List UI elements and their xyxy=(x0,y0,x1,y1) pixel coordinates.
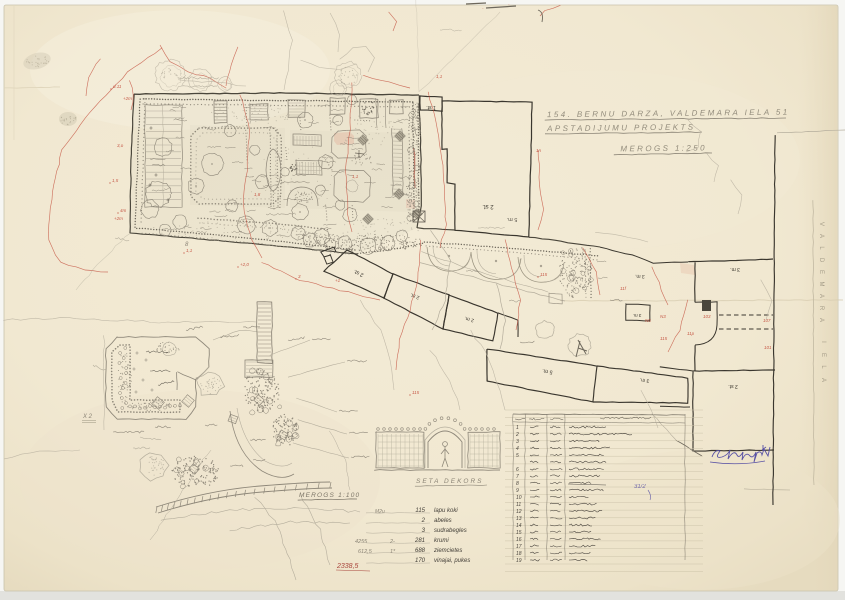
svg-text:A: A xyxy=(818,294,824,298)
svg-text:R: R xyxy=(818,306,824,311)
svg-text:X 2: X 2 xyxy=(82,414,93,420)
svg-text:19: 19 xyxy=(516,558,522,564)
svg-text:101: 101 xyxy=(764,345,772,350)
svg-text:MEROGS 1:100: MEROGS 1:100 xyxy=(299,492,360,499)
svg-text:krumi: krumi xyxy=(434,538,449,544)
svg-text:8: 8 xyxy=(516,481,519,487)
svg-text:2 st.: 2 st. xyxy=(728,383,737,389)
svg-text:+2,0: +2,0 xyxy=(240,262,249,267)
svg-text:1*: 1* xyxy=(390,549,396,555)
svg-text:1n: 1n xyxy=(536,148,542,153)
svg-text:1,1: 1,1 xyxy=(352,174,359,179)
svg-text:abeles: abeles xyxy=(434,518,452,524)
svg-text:9: 9 xyxy=(516,488,519,494)
svg-text:5 m.: 5 m. xyxy=(506,216,517,222)
svg-text:15: 15 xyxy=(516,530,522,536)
svg-text:1,1: 1,1 xyxy=(436,74,443,79)
svg-text:lapu koki: lapu koki xyxy=(434,508,458,514)
svg-text:APSTADIJUMU PROJEKTS: APSTADIJUMU PROJEKTS xyxy=(546,123,695,134)
svg-text:4m: 4m xyxy=(120,208,127,213)
svg-text:12: 12 xyxy=(516,509,522,515)
svg-text:115: 115 xyxy=(415,508,425,514)
svg-text:+2m: +2m xyxy=(123,96,132,101)
svg-text:1 st.: 1 st. xyxy=(426,104,435,110)
svg-text:612,5: 612,5 xyxy=(358,549,373,555)
svg-text:N5: N5 xyxy=(645,318,651,323)
svg-text:103: 103 xyxy=(703,314,711,319)
svg-text:2 st.: 2 st. xyxy=(482,203,494,209)
svg-text:18: 18 xyxy=(516,551,522,557)
svg-text:A: A xyxy=(820,378,826,382)
svg-text:+1: +1 xyxy=(335,278,341,283)
svg-text:281: 281 xyxy=(414,538,425,544)
svg-text:1,1: 1,1 xyxy=(186,248,193,253)
svg-text:170: 170 xyxy=(415,558,426,564)
svg-text:1,8: 1,8 xyxy=(254,192,261,197)
svg-text:14: 14 xyxy=(516,523,522,529)
svg-text:A: A xyxy=(818,318,824,322)
svg-text:A: A xyxy=(818,234,824,238)
svg-text:13: 13 xyxy=(516,516,522,522)
svg-text:11f: 11f xyxy=(620,286,627,291)
svg-text:11: 11 xyxy=(516,502,521,508)
svg-text:3 m.: 3 m. xyxy=(635,273,645,279)
svg-text:1: 1 xyxy=(516,425,519,431)
svg-text:2: 2 xyxy=(421,518,426,524)
svg-text:sudrabegles: sudrabegles xyxy=(434,528,467,534)
svg-text:d.11: d.11 xyxy=(113,84,122,89)
svg-text:31/2: 31/2 xyxy=(634,484,646,490)
svg-text:3 m.: 3 m. xyxy=(730,266,740,272)
svg-text:ziemcietes: ziemcietes xyxy=(433,548,462,554)
svg-text:M: M xyxy=(818,282,824,287)
svg-text:115: 115 xyxy=(540,272,548,277)
svg-text:D: D xyxy=(818,258,824,263)
svg-text:3 m.: 3 m. xyxy=(633,313,642,318)
svg-text:M2u: M2u xyxy=(375,509,385,515)
svg-text:115: 115 xyxy=(412,390,420,395)
svg-text:2-: 2- xyxy=(389,539,395,545)
svg-text:N3: N3 xyxy=(660,314,666,319)
svg-text:5: 5 xyxy=(516,453,519,459)
svg-text:4255: 4255 xyxy=(355,539,368,545)
svg-text:7: 7 xyxy=(516,474,519,480)
svg-text:vinajai, pukes: vinajai, pukes xyxy=(434,558,470,564)
svg-text:688: 688 xyxy=(415,548,426,554)
svg-text:11p: 11p xyxy=(687,331,695,336)
svg-text:SETA DEKORS: SETA DEKORS xyxy=(416,478,484,485)
svg-text:V: V xyxy=(818,222,824,226)
svg-text:2: 2 xyxy=(515,432,519,438)
svg-text:17: 17 xyxy=(516,544,522,550)
svg-text:+2m: +2m xyxy=(114,216,123,221)
svg-text:6: 6 xyxy=(516,467,519,473)
svg-text:115: 115 xyxy=(660,336,668,341)
svg-text:MEROGS 1:250: MEROGS 1:250 xyxy=(620,143,707,153)
svg-text:E: E xyxy=(818,270,824,274)
svg-text:4: 4 xyxy=(516,446,519,452)
svg-text:3: 3 xyxy=(516,439,519,445)
svg-text:107: 107 xyxy=(763,318,771,323)
svg-text:1,5: 1,5 xyxy=(112,178,119,183)
svg-text:2338,5: 2338,5 xyxy=(336,563,359,570)
svg-text:16: 16 xyxy=(516,537,522,543)
svg-text:10: 10 xyxy=(516,495,522,501)
svg-text:E: E xyxy=(820,353,826,357)
svg-text:3,o: 3,o xyxy=(117,143,124,148)
